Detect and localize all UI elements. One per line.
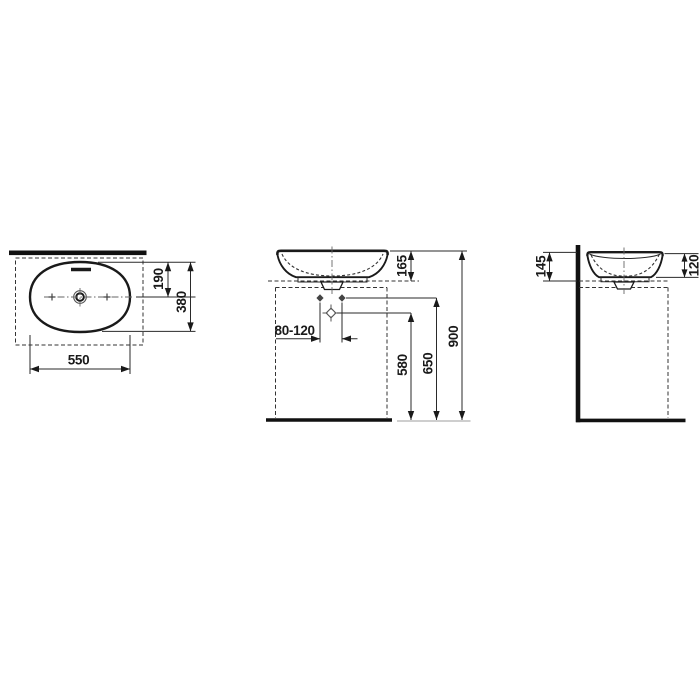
dim-label-580: 580 — [395, 354, 410, 376]
side-view: 145 120 — [534, 245, 700, 422]
basin-body — [278, 255, 388, 277]
dimension-drain-height-group: 580 — [395, 313, 414, 420]
dimension-basin-height-group: 165 — [390, 251, 467, 281]
arrow-down-icon — [187, 322, 193, 331]
arrow-left-icon — [30, 366, 39, 372]
arrow-down-icon — [459, 411, 465, 420]
basin-rim — [587, 252, 662, 256]
arrow-down-icon — [408, 411, 414, 420]
dim-label-120: 120 — [687, 255, 700, 277]
drain-connection-icon — [323, 305, 340, 322]
washbasin-dimension-drawing: 190 380 550 — [0, 0, 700, 700]
dimension-tap-distance-group: 80-120 — [275, 303, 358, 343]
dim-label-550: 550 — [68, 353, 90, 368]
arrow-up-icon — [408, 313, 414, 322]
dimension-back-height-group: 145 — [534, 252, 578, 281]
basin-body — [588, 256, 663, 277]
faucet-hole-right-icon — [338, 294, 345, 302]
top-view: 190 380 550 — [9, 251, 196, 375]
arrow-up-icon — [433, 298, 439, 307]
arrow-down-icon — [433, 411, 439, 420]
wall-line — [9, 251, 147, 256]
dim-label-650: 650 — [421, 353, 436, 375]
dimension-overall-height-group: 900 — [446, 251, 465, 420]
dim-label-190: 190 — [151, 268, 166, 290]
basin-front-outline — [277, 247, 387, 295]
dim-label-900: 900 — [446, 326, 461, 348]
arrow-right-icon — [121, 366, 130, 372]
dim-label-380: 380 — [174, 291, 189, 313]
arrow-up-icon — [459, 251, 465, 260]
inner-bowl-dashed — [282, 254, 383, 276]
basin-rim — [277, 251, 387, 255]
arrow-up-icon — [187, 262, 193, 271]
dim-label-80-120: 80-120 — [275, 323, 315, 338]
dim-label-165: 165 — [395, 254, 410, 276]
dim-label-145: 145 — [534, 255, 549, 277]
faucet-hole-left-icon — [316, 294, 323, 302]
dimension-width-group: 550 — [30, 335, 130, 374]
front-view: 80-120 165 580 650 90 — [266, 247, 471, 422]
dimension-supply-height-group: 650 — [421, 298, 440, 420]
arrow-left-icon — [342, 336, 351, 342]
